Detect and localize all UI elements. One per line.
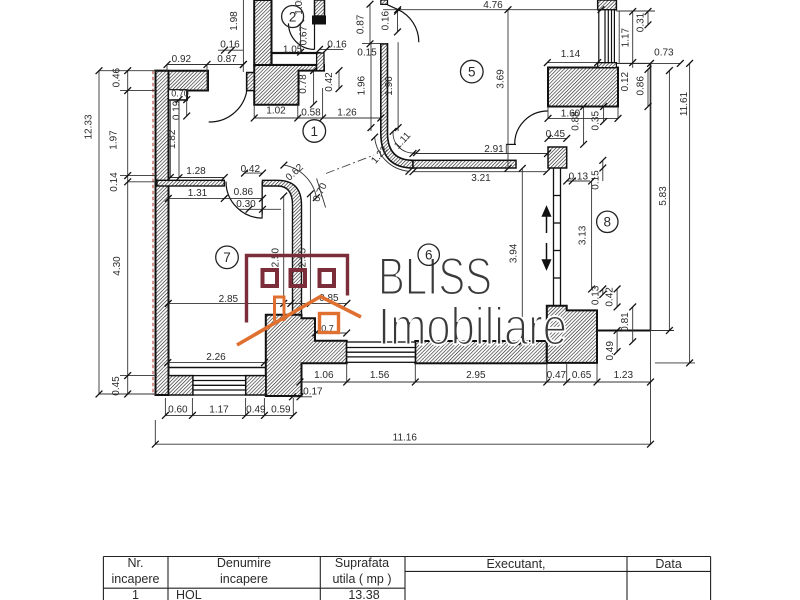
- svg-text:0.60: 0.60: [168, 405, 188, 416]
- svg-text:Suprafata: Suprafata: [335, 556, 389, 570]
- svg-text:3.69: 3.69: [495, 69, 506, 89]
- svg-text:8: 8: [604, 215, 612, 230]
- svg-text:0.87: 0.87: [217, 54, 237, 65]
- svg-text:0.42: 0.42: [324, 72, 335, 92]
- svg-text:1.17: 1.17: [621, 27, 632, 47]
- svg-text:incapere: incapere: [112, 572, 160, 586]
- svg-text:0.15: 0.15: [590, 170, 601, 190]
- svg-text:Nr.: Nr.: [128, 556, 144, 570]
- svg-text:1.14: 1.14: [561, 49, 581, 60]
- svg-text:0.45: 0.45: [111, 376, 122, 396]
- svg-text:0.87: 0.87: [355, 14, 366, 34]
- svg-text:0.46: 0.46: [112, 67, 123, 87]
- svg-text:0.14: 0.14: [109, 172, 120, 192]
- svg-text:2.26: 2.26: [206, 352, 226, 363]
- svg-text:0.67: 0.67: [298, 25, 309, 45]
- svg-text:7: 7: [223, 250, 231, 265]
- svg-text:1.96: 1.96: [357, 75, 368, 95]
- svg-text:0.59: 0.59: [271, 405, 291, 416]
- svg-text:0.12: 0.12: [620, 71, 631, 91]
- svg-text:0.16: 0.16: [220, 40, 240, 51]
- svg-text:1.17: 1.17: [209, 405, 229, 416]
- svg-text:2.55: 2.55: [298, 247, 309, 267]
- svg-text:2.85: 2.85: [219, 294, 239, 305]
- svg-text:1.31: 1.31: [188, 188, 208, 199]
- svg-text:1.26: 1.26: [337, 107, 357, 118]
- svg-text:0.15: 0.15: [357, 48, 377, 59]
- svg-text:0.86: 0.86: [635, 76, 646, 96]
- svg-text:0.88: 0.88: [570, 111, 581, 131]
- svg-text:1.28: 1.28: [186, 166, 206, 177]
- svg-text:0.13: 0.13: [590, 285, 601, 305]
- svg-text:1.23: 1.23: [614, 370, 634, 381]
- svg-text:Denumire: Denumire: [217, 556, 271, 570]
- svg-text:0.92: 0.92: [172, 54, 192, 65]
- svg-text:0.16: 0.16: [381, 10, 392, 30]
- svg-text:Data: Data: [655, 557, 681, 571]
- svg-text:0.45: 0.45: [546, 129, 566, 140]
- svg-text:2.50: 2.50: [271, 247, 282, 267]
- svg-text:Executant,: Executant,: [486, 557, 545, 571]
- svg-text:0.13: 0.13: [569, 172, 589, 183]
- svg-text:HOL: HOL: [176, 588, 202, 600]
- svg-text:1: 1: [132, 588, 139, 600]
- svg-text:0.42: 0.42: [241, 164, 261, 175]
- svg-text:0.16: 0.16: [327, 40, 347, 51]
- svg-text:0.35: 0.35: [590, 111, 601, 131]
- svg-text:1.02: 1.02: [266, 106, 286, 117]
- svg-text:incapere: incapere: [220, 572, 268, 586]
- svg-text:4.30: 4.30: [112, 256, 123, 276]
- svg-text:6: 6: [425, 248, 433, 263]
- svg-text:0.19: 0.19: [172, 100, 183, 120]
- svg-text:0.58: 0.58: [301, 107, 321, 118]
- svg-text:11.16: 11.16: [393, 433, 418, 444]
- svg-text:2.95: 2.95: [466, 370, 486, 381]
- svg-text:5.83: 5.83: [658, 186, 669, 206]
- svg-text:1.82: 1.82: [167, 129, 178, 149]
- svg-text:3.94: 3.94: [508, 243, 519, 263]
- svg-text:3.21: 3.21: [471, 173, 491, 184]
- svg-text:1.56: 1.56: [370, 370, 390, 381]
- svg-text:Imobiliare: Imobiliare: [378, 298, 567, 357]
- svg-text:0.30: 0.30: [236, 199, 256, 210]
- svg-text:1.98: 1.98: [229, 11, 240, 31]
- svg-text:1: 1: [311, 124, 319, 139]
- svg-text:0.70: 0.70: [171, 89, 189, 99]
- svg-text:0.78: 0.78: [298, 74, 309, 94]
- svg-text:12.33: 12.33: [83, 114, 94, 139]
- svg-text:0.65: 0.65: [572, 370, 592, 381]
- svg-text:4.76: 4.76: [483, 0, 503, 11]
- svg-text:0.31: 0.31: [636, 12, 647, 32]
- svg-text:utila ( mp ): utila ( mp ): [332, 572, 391, 586]
- svg-text:1.06: 1.06: [314, 370, 334, 381]
- svg-text:13.38: 13.38: [348, 588, 379, 600]
- svg-text:2: 2: [289, 9, 297, 24]
- svg-text:1.97: 1.97: [108, 130, 119, 150]
- svg-text:0.73: 0.73: [654, 48, 674, 59]
- svg-text:0.81: 0.81: [620, 312, 631, 332]
- svg-text:0.47: 0.47: [547, 370, 567, 381]
- svg-text:5: 5: [468, 64, 476, 79]
- svg-text:1.96: 1.96: [384, 76, 395, 96]
- svg-text:0.42: 0.42: [604, 287, 615, 307]
- svg-text:0.49: 0.49: [246, 405, 266, 416]
- svg-text:3.13: 3.13: [577, 225, 588, 245]
- svg-text:11.61: 11.61: [679, 91, 690, 116]
- svg-text:0.17: 0.17: [303, 387, 323, 398]
- svg-text:0.86: 0.86: [234, 187, 254, 198]
- svg-text:2.91: 2.91: [484, 144, 504, 155]
- svg-text:0.49: 0.49: [605, 341, 616, 361]
